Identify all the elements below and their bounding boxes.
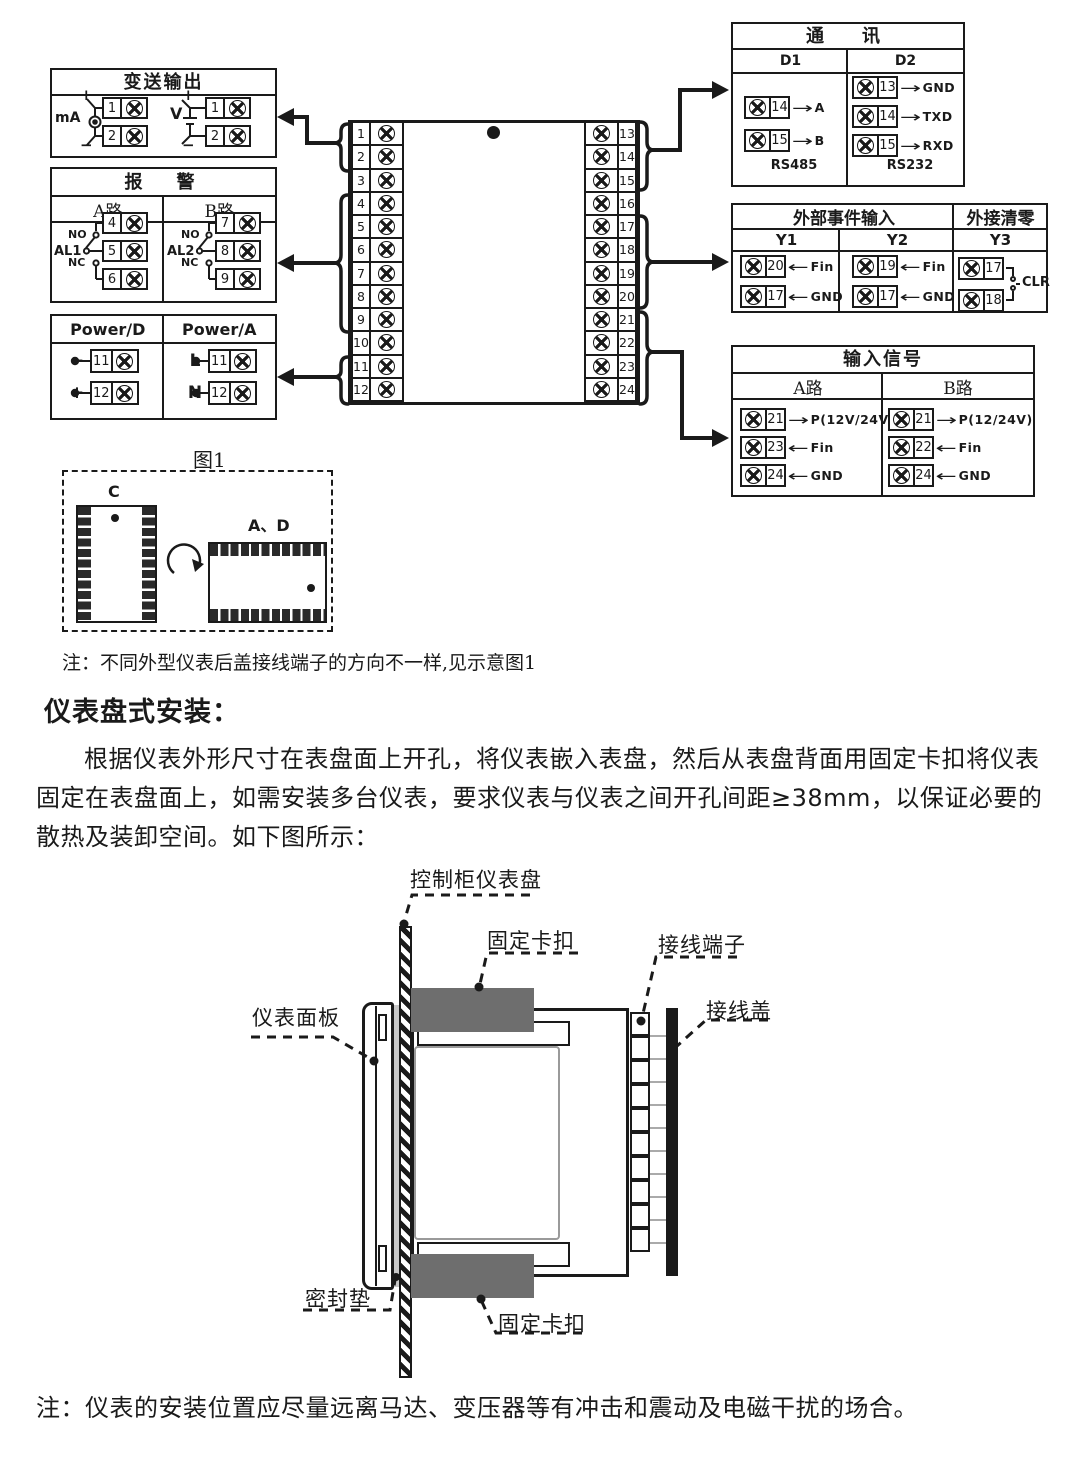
terminal-number: 11 [90, 349, 113, 373]
v-minus-sign: − [182, 136, 195, 154]
io-row: 22←Fin [888, 436, 1033, 459]
power-sign: N [182, 383, 208, 403]
signal-label: Fin [811, 440, 834, 455]
screw-terminal-icon [120, 212, 148, 234]
wiring-cover-bar [666, 1008, 678, 1276]
screw-terminal-icon [888, 436, 915, 459]
screw-terminal-icon [584, 284, 619, 309]
terminal-number: 22 [913, 436, 934, 459]
wire-direction-arrow: → [788, 411, 809, 429]
terminal-hinge-lines [650, 1014, 666, 1250]
input-signal-title: 输入信号 [733, 347, 1033, 374]
screw-terminal-icon [584, 261, 619, 286]
terminal-number: 4 [102, 212, 122, 234]
terminal-number: 11 [208, 349, 231, 373]
bottom-note: 注：仪表的安装位置应尽量远离马达、变压器等有冲击和震动及电磁干扰的场合。 [36, 1388, 918, 1423]
screw-terminal-icon [584, 330, 619, 355]
terminal-number: 15 [877, 134, 898, 157]
ma-label: mA [55, 110, 80, 126]
terminal-cell: 11 [90, 349, 139, 373]
screw-terminal-icon [584, 168, 619, 193]
terminal-cell: 4 [351, 191, 404, 216]
screw-terminal-icon [740, 436, 767, 459]
terminal-cell: 1 [205, 97, 251, 119]
signal-label: Fin [811, 259, 834, 274]
terminal-number: 6 [351, 237, 371, 262]
terminal-cell: 7 [351, 261, 404, 286]
wire-direction-arrow: ← [900, 258, 921, 276]
v-label: V [170, 104, 182, 123]
terminal-cell: 12 [208, 381, 257, 405]
screw-terminal-icon [369, 168, 404, 193]
terminal-cell: 22 [584, 330, 637, 355]
event-input-title: 外部事件输入 [733, 204, 955, 229]
input-subheader: A路 B路 [733, 374, 1033, 400]
wire-direction-arrow: → [900, 108, 921, 126]
power-row: −11 [64, 349, 139, 373]
terminal-cell: 5 [102, 240, 148, 262]
terminal-block-right-column: 131415161718192021222324 [584, 123, 637, 402]
signal-label: TXD [923, 109, 953, 124]
faceplate-face-line [375, 1006, 377, 1286]
terminal-number: 24 [765, 464, 786, 487]
screw-terminal-icon [233, 240, 261, 262]
terminal-number: 7 [351, 261, 371, 286]
screw-terminal-icon [229, 349, 257, 373]
screw-terminal-icon [584, 121, 619, 146]
terminal-number: 14 [617, 144, 637, 169]
figure1-ad-bottom-strip [210, 609, 325, 621]
fixing-clip-top [411, 988, 534, 1032]
comm-d2-rows: 13→GND14→TXD15→RXD [852, 76, 955, 157]
label-faceplate: 仪表面板 [252, 1002, 340, 1032]
label-wiring-terminal: 接线端子 [658, 929, 746, 959]
y1-rows: 20←Fin17←GND [740, 255, 843, 308]
terminal-cell: 18 [958, 289, 1004, 312]
install-paragraph: 根据仪表外形尺寸在表盘面上开孔，将仪表嵌入表盘，然后从表盘背面用固定卡扣将仪表固… [36, 740, 1046, 857]
rs232-label: RS232 [868, 158, 952, 173]
comm-title: 通 讯 [733, 24, 963, 50]
signal-label: P(12/24V) [959, 412, 1033, 427]
terminal-block-left-column: 123456789101112 [351, 123, 404, 402]
screw-terminal-icon [369, 377, 404, 402]
power-ac-rows: L11N12 [182, 349, 257, 405]
io-row: 21→P(12/24V) [888, 408, 1033, 431]
screw-terminal-icon [369, 237, 404, 262]
signal-label: GND [923, 80, 956, 95]
screw-terminal-icon [852, 285, 879, 308]
signal-label: A [815, 100, 825, 115]
screw-terminal-icon [584, 354, 619, 379]
signal-label: GND [959, 468, 992, 483]
screw-terminal-icon [369, 307, 404, 332]
label-gasket: 密封垫 [305, 1283, 371, 1313]
screw-terminal-icon [120, 240, 148, 262]
screw-terminal-icon [740, 408, 767, 431]
power-row: N12 [182, 381, 257, 405]
terminal-cell: 21 [584, 307, 637, 332]
v-terminals: 12 [205, 97, 251, 147]
power-dc-rows: −11+12 [64, 349, 139, 405]
screw-terminal-icon [369, 284, 404, 309]
terminal-cell: 12 [351, 377, 404, 402]
terminal-cell: 10 [351, 330, 404, 355]
instrument-chassis [414, 1046, 560, 1240]
io-row: 24←GND [888, 464, 1033, 487]
terminal-cell: 5 [351, 214, 404, 239]
terminal-number: 9 [351, 307, 371, 332]
alarm-b-nc: NC [181, 256, 198, 269]
terminal-number: 7 [215, 212, 235, 234]
terminal-cell: 8 [215, 240, 261, 262]
input-a-header: A路 [733, 374, 883, 399]
io-row: 15→RXD [852, 134, 955, 157]
terminal-cell: 2 [205, 125, 251, 147]
alarm-a-no: NO [68, 228, 87, 241]
screw-terminal-icon [740, 464, 767, 487]
wire-direction-arrow: ← [900, 288, 921, 306]
io-row: 19←Fin [852, 255, 955, 278]
terminal-cell: 9 [351, 307, 404, 332]
terminal-number: 13 [617, 121, 637, 146]
screw-terminal-icon [369, 354, 404, 379]
wire-direction-arrow: ← [788, 258, 809, 276]
ma-minus-sign: − [80, 136, 93, 154]
terminal-number: 19 [877, 255, 898, 278]
terminal-number: 17 [765, 285, 786, 308]
alarm-b-terminals: 789 [215, 212, 261, 290]
screw-terminal-icon [584, 144, 619, 169]
manual-page: 变送输出 + mA − 12 + V − 12 报 警 A路 B路 AL1 NO… [0, 0, 1080, 1463]
screw-terminal-icon [852, 255, 879, 278]
terminal-number: 3 [351, 168, 371, 193]
figure1-c-left-strip [78, 507, 91, 621]
terminal-number: 23 [617, 354, 637, 379]
power-ac-header: Power/A [164, 320, 276, 339]
terminal-cell: 23 [584, 354, 637, 379]
wire-direction-arrow: ← [936, 467, 957, 485]
signal-label: RXD [923, 138, 954, 153]
screw-terminal-icon [852, 76, 879, 99]
terminal-cell: 2 [102, 125, 148, 147]
block-orientation-dot [487, 126, 500, 139]
terminal-number: 6 [102, 268, 122, 290]
alarm-title: 报 警 [52, 169, 275, 197]
io-row: 21→P(12V/24V) [740, 408, 895, 431]
comm-d1-header: D1 [733, 53, 848, 69]
signal-label: Fin [959, 440, 982, 455]
power-sign: − [64, 351, 90, 371]
terminal-number: 13 [877, 76, 898, 99]
terminal-number: 20 [617, 284, 637, 309]
terminal-number: 17 [983, 257, 1004, 280]
screw-terminal-icon [744, 129, 771, 152]
wire-direction-arrow: → [936, 411, 957, 429]
screw-terminal-icon [369, 330, 404, 355]
screw-terminal-icon [852, 105, 879, 128]
io-row: 14→A [744, 96, 825, 119]
io-row: 15→B [744, 129, 825, 152]
ma-plus-sign: + [80, 86, 93, 104]
terminal-number: 17 [617, 214, 637, 239]
terminal-cell: 17 [584, 214, 637, 239]
terminal-number: 8 [351, 284, 371, 309]
screw-terminal-icon [740, 255, 767, 278]
terminal-number: 24 [617, 377, 637, 402]
power-dc-header: Power/D [52, 320, 164, 339]
terminal-number: 2 [102, 125, 122, 147]
io-row: 20←Fin [740, 255, 843, 278]
input-b-rows: 21→P(12/24V)22←Fin24←GND [888, 408, 1033, 487]
terminal-number: 23 [765, 436, 786, 459]
wiring-terminal-strip [630, 1012, 650, 1252]
external-clear-title: 外接清零 [955, 204, 1046, 229]
terminal-number: 11 [351, 354, 371, 379]
terminal-number: 4 [351, 191, 371, 216]
io-row: 17←GND [852, 285, 955, 308]
screw-terminal-icon [369, 191, 404, 216]
io-row: 24←GND [740, 464, 895, 487]
terminal-number: 9 [215, 268, 235, 290]
figure-note: 注：不同外型仪表后盖接线端子的方向不一样,见示意图1 [62, 648, 536, 675]
screw-terminal-icon [888, 464, 915, 487]
terminal-number: 19 [617, 261, 637, 286]
wire-direction-arrow: ← [788, 467, 809, 485]
wire-direction-arrow: ← [788, 439, 809, 457]
screw-terminal-icon [233, 268, 261, 290]
power-sign: L [182, 351, 208, 371]
terminal-cell: 15 [584, 168, 637, 193]
terminal-number: 14 [769, 96, 790, 119]
y3-header: Y3 [955, 231, 1046, 249]
terminal-number: 12 [351, 377, 371, 402]
faceplate-slot-bottom [378, 1245, 387, 1272]
terminal-cell: 6 [102, 268, 148, 290]
terminal-cell: 24 [584, 377, 637, 402]
terminal-cell: 20 [584, 284, 637, 309]
terminal-cell: 14 [584, 144, 637, 169]
label-cabinet-panel: 控制柜仪表盘 [410, 864, 542, 894]
terminal-number: 15 [769, 129, 790, 152]
figure1-caption: 图1 [193, 444, 226, 473]
screw-terminal-icon [233, 212, 261, 234]
screw-terminal-icon [584, 377, 619, 402]
power-row: L11 [182, 349, 257, 373]
alarm-b-no: NO [181, 228, 200, 241]
terminal-cell: 9 [215, 268, 261, 290]
alarm-a-terminals: 456 [102, 212, 148, 290]
label-wiring-cover: 接线盖 [706, 995, 772, 1025]
terminal-number: 5 [351, 214, 371, 239]
terminal-cell: 1 [351, 121, 404, 146]
terminal-number: 22 [617, 330, 637, 355]
signal-label: B [815, 133, 825, 148]
screw-terminal-icon [584, 214, 619, 239]
alarm-a-nc: NC [68, 256, 85, 269]
terminal-number: 12 [90, 381, 113, 405]
faceplate-slot-top [378, 1014, 387, 1041]
terminal-cell: 19 [584, 261, 637, 286]
comm-d1-rows: 14→A15→B [744, 96, 825, 152]
screw-terminal-icon [958, 289, 985, 312]
figure1-ad-label: A、D [248, 512, 290, 536]
terminal-cell: 12 [90, 381, 139, 405]
screw-terminal-icon [111, 349, 139, 373]
y1-header: Y1 [733, 231, 840, 249]
v-plus-sign: + [182, 86, 195, 104]
terminal-cell: 2 [351, 144, 404, 169]
screw-terminal-icon [111, 381, 139, 405]
y2-rows: 19←Fin17←GND [852, 255, 955, 308]
comm-d2-header: D2 [848, 53, 963, 69]
screw-terminal-icon [229, 381, 257, 405]
signal-label: P(12V/24V) [811, 412, 895, 427]
power-divider [162, 314, 164, 420]
terminal-cell: 18 [584, 237, 637, 262]
terminal-cell: 8 [351, 284, 404, 309]
io-row: 13→GND [852, 76, 955, 99]
terminal-cell: 3 [351, 168, 404, 193]
screw-terminal-icon [120, 97, 148, 119]
signal-label: GND [811, 468, 844, 483]
terminal-number: 1 [351, 121, 371, 146]
clr-label: CLR [1022, 275, 1050, 290]
screw-terminal-icon [369, 214, 404, 239]
figure1-c-dot [111, 514, 119, 522]
terminal-number: 14 [877, 105, 898, 128]
io-row: 14→TXD [852, 105, 955, 128]
panel-install-heading: 仪表盘式安装： [44, 690, 240, 729]
event-subheader-row: Y1 Y2 Y3 [733, 230, 1046, 252]
io-row: 17←GND [740, 285, 843, 308]
terminal-number: 15 [617, 168, 637, 193]
screw-terminal-icon [369, 261, 404, 286]
event-header-row: 外部事件输入 外接清零 [733, 205, 1046, 230]
figure1-ad-dot [307, 584, 315, 592]
signal-label: GND [811, 289, 844, 304]
terminal-number: 21 [765, 408, 786, 431]
comm-divider [846, 48, 848, 187]
terminal-number: 10 [351, 330, 371, 355]
screw-terminal-icon [584, 237, 619, 262]
fixing-clip-bottom [411, 1254, 534, 1298]
terminal-cell: 11 [208, 349, 257, 373]
screw-terminal-icon [744, 96, 771, 119]
screw-terminal-icon [584, 307, 619, 332]
terminal-number: 8 [215, 240, 235, 262]
terminal-cell: 17 [958, 257, 1004, 280]
screw-terminal-icon [369, 121, 404, 146]
wire-direction-arrow: → [792, 99, 813, 117]
rs485-label: RS485 [752, 158, 836, 173]
signal-label: GND [923, 289, 956, 304]
terminal-number: 1 [102, 97, 122, 119]
screw-terminal-icon [223, 97, 251, 119]
wire-direction-arrow: ← [788, 288, 809, 306]
comm-subheader: D1 D2 [733, 50, 963, 74]
terminal-number: 21 [913, 408, 934, 431]
power-sign: + [64, 383, 90, 403]
input-a-rows: 21→P(12V/24V)23←Fin24←GND [740, 408, 895, 487]
terminal-number: 24 [913, 464, 934, 487]
y3-terminals: 1718 [958, 257, 1004, 312]
wire-direction-arrow: ← [936, 439, 957, 457]
terminal-number: 18 [617, 237, 637, 262]
y2-header: Y2 [840, 231, 955, 249]
screw-terminal-icon [740, 285, 767, 308]
screw-terminal-icon [369, 144, 404, 169]
signal-label: Fin [923, 259, 946, 274]
screw-terminal-icon [852, 134, 879, 157]
terminal-number: 20 [765, 255, 786, 278]
input-b-header: B路 [883, 374, 1033, 399]
terminal-cell: 4 [102, 212, 148, 234]
terminal-cell: 1 [102, 97, 148, 119]
terminal-cell: 16 [584, 191, 637, 216]
terminal-number: 5 [102, 240, 122, 262]
wire-direction-arrow: → [900, 79, 921, 97]
terminal-number: 17 [877, 285, 898, 308]
terminal-number: 2 [205, 125, 225, 147]
terminal-number: 18 [983, 289, 1004, 312]
label-fixing-clip-top: 固定卡扣 [487, 925, 575, 955]
terminal-cell: 13 [584, 121, 637, 146]
terminal-cell: 7 [215, 212, 261, 234]
power-row: +12 [64, 381, 139, 405]
ma-terminals: 12 [102, 97, 148, 147]
figure1-c-label: C [108, 482, 120, 501]
terminal-number: 1 [205, 97, 225, 119]
terminal-cell: 6 [351, 237, 404, 262]
figure1-ad-top-strip [210, 544, 325, 556]
wire-direction-arrow: → [792, 132, 813, 150]
io-row: 23←Fin [740, 436, 895, 459]
terminal-number: 2 [351, 144, 371, 169]
screw-terminal-icon [120, 268, 148, 290]
terminal-cell: 11 [351, 354, 404, 379]
screw-terminal-icon [958, 257, 985, 280]
terminal-number: 21 [617, 307, 637, 332]
label-fixing-clip-bottom: 固定卡扣 [498, 1308, 586, 1338]
terminal-number: 16 [617, 191, 637, 216]
alarm-divider [162, 195, 164, 303]
terminal-number: 12 [208, 381, 231, 405]
screw-terminal-icon [888, 408, 915, 431]
screw-terminal-icon [223, 125, 251, 147]
wire-direction-arrow: → [900, 137, 921, 155]
screw-terminal-icon [120, 125, 148, 147]
figure1-c-right-strip [142, 507, 155, 621]
screw-terminal-icon [584, 191, 619, 216]
